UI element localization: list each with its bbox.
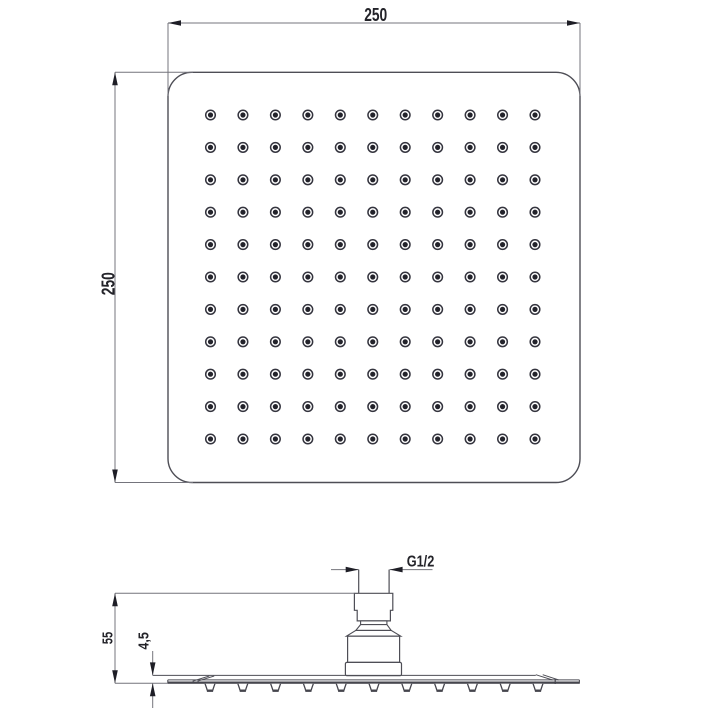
svg-text:250: 250 xyxy=(98,272,119,295)
svg-text:4,5: 4,5 xyxy=(135,632,152,650)
svg-text:G1/2: G1/2 xyxy=(407,554,435,571)
svg-text:55: 55 xyxy=(99,632,116,645)
svg-text:250: 250 xyxy=(364,4,387,25)
